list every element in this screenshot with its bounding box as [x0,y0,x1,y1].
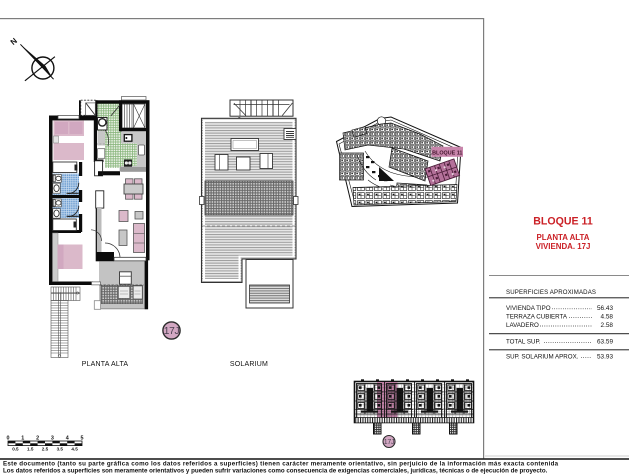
svg-text:VIVIENDA. 17J: VIVIENDA. 17J [536,242,591,251]
svg-text:SOLARIUM: SOLARIUM [230,361,268,368]
svg-text:17J: 17J [164,326,180,337]
svg-text:3: 3 [51,436,54,442]
svg-text:VIVIENDA TIPO: VIVIENDA TIPO [506,305,551,312]
svg-text:3.5: 3.5 [57,447,64,452]
svg-text:1: 1 [21,436,24,442]
svg-text:PLANTA ALTA: PLANTA ALTA [82,361,129,368]
svg-text:BLOQUE 11: BLOQUE 11 [432,151,462,157]
svg-text:2.58: 2.58 [601,322,614,329]
svg-text:4: 4 [66,436,69,442]
svg-text:4.58: 4.58 [601,314,614,321]
svg-text:56.43: 56.43 [597,305,613,312]
svg-text:SUP. SOLARIUM APROX.: SUP. SOLARIUM APROX. [506,354,579,361]
svg-text:63.59: 63.59 [597,339,613,346]
svg-text:LAVADERO: LAVADERO [506,322,539,329]
svg-text:Los datos referidos a superfic: Los datos referidos a superficies son me… [3,468,548,475]
svg-text:PLANTA ALTA: PLANTA ALTA [537,233,590,242]
svg-text:0.5: 0.5 [12,447,19,452]
svg-text:2.5: 2.5 [42,447,49,452]
svg-text:TOTAL SUP.: TOTAL SUP. [506,339,541,346]
svg-text:2: 2 [36,436,39,442]
svg-text:1.5: 1.5 [27,447,34,452]
svg-text:BLOQUE 11: BLOQUE 11 [533,216,593,228]
svg-text:4.5: 4.5 [71,447,78,452]
svg-text:Este documento (tanto su parte: Este documento (tanto su parte gráfica c… [3,461,559,468]
svg-text:5: 5 [81,436,84,442]
svg-text:53.93: 53.93 [597,354,613,361]
svg-text:TERRAZA CUBIERTA: TERRAZA CUBIERTA [506,314,568,321]
svg-text:SUPERFICIES APROXIMADAS: SUPERFICIES APROXIMADAS [506,289,596,296]
svg-text:17J: 17J [384,439,394,446]
svg-text:0: 0 [7,436,10,442]
